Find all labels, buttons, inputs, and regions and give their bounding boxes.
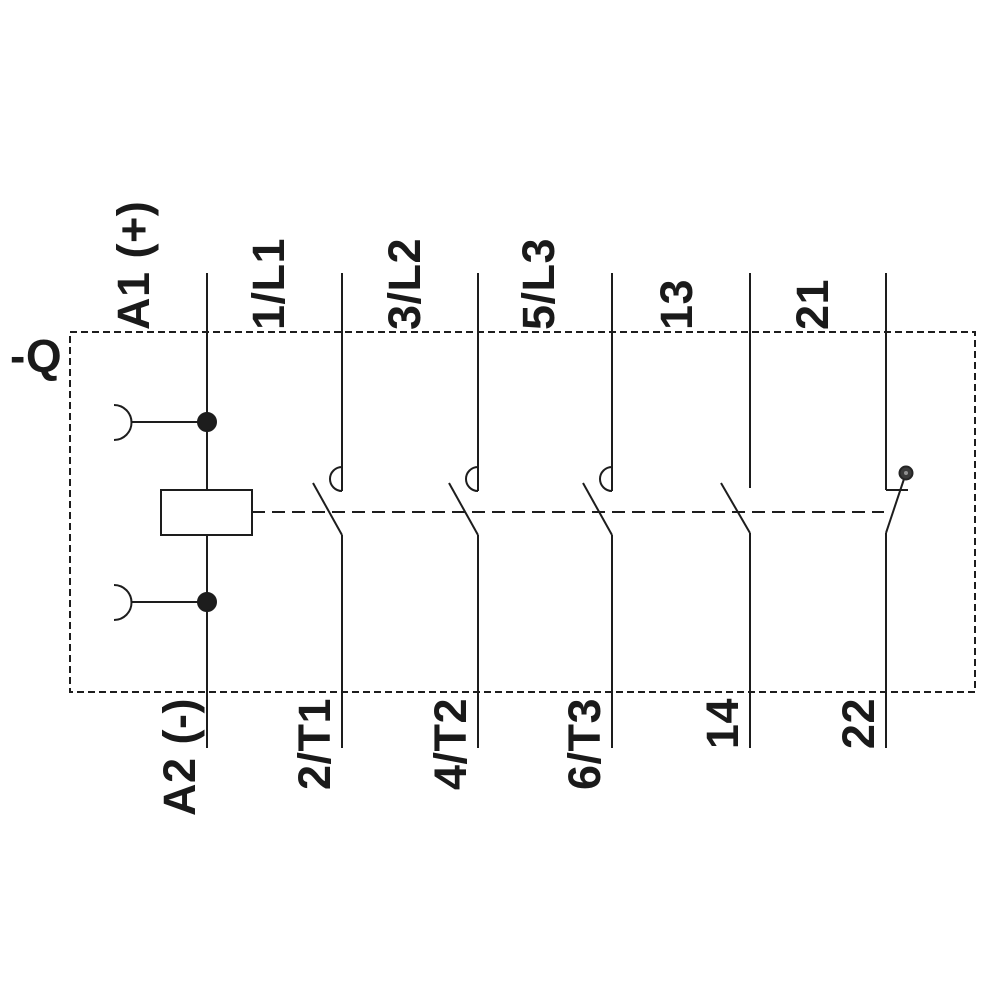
contactor-schematic: -Q A1 (+) 1/L1 3/L2 5/L3 13 21 A2 (-) 2/… <box>0 0 1000 1000</box>
terminal-label-2t1: 2/T1 <box>292 698 338 790</box>
terminal-label-3l2: 3/L2 <box>382 238 428 330</box>
nc-contact-dot-center <box>904 471 908 475</box>
terminal-label-a1: A1 (+) <box>111 201 157 330</box>
terminal-label-14: 14 <box>700 698 746 749</box>
a2-junction-dot <box>198 593 216 611</box>
coil-symbol <box>161 490 252 535</box>
terminal-label-21: 21 <box>790 279 836 330</box>
pole-main-l2 <box>449 273 478 748</box>
a2-connection-arc-icon <box>114 585 132 620</box>
moving-contact-blade <box>721 483 750 533</box>
device-designation-label: -Q <box>10 333 62 379</box>
coil-branch <box>114 273 252 748</box>
moving-contact-blade <box>886 479 904 533</box>
a1-junction-dot <box>198 413 216 431</box>
pole-main-l1 <box>313 273 342 748</box>
fixed-contact-arc-icon <box>600 467 612 491</box>
terminal-label-a2: A2 (-) <box>157 698 203 816</box>
pole-aux-nc <box>886 273 913 748</box>
terminal-label-22: 22 <box>836 698 882 749</box>
terminal-label-5l3: 5/L3 <box>516 238 562 330</box>
terminal-label-4t2: 4/T2 <box>428 698 474 790</box>
terminal-label-13: 13 <box>654 279 700 330</box>
pole-aux-no <box>721 273 750 748</box>
terminal-label-1l1: 1/L1 <box>246 238 292 330</box>
pole-main-l3 <box>583 273 612 748</box>
fixed-contact-arc-icon <box>330 467 342 491</box>
terminal-label-6t3: 6/T3 <box>562 698 608 790</box>
a1-connection-arc-icon <box>114 405 132 440</box>
schematic-linework <box>0 0 1000 1000</box>
fixed-contact-arc-icon <box>466 467 478 491</box>
